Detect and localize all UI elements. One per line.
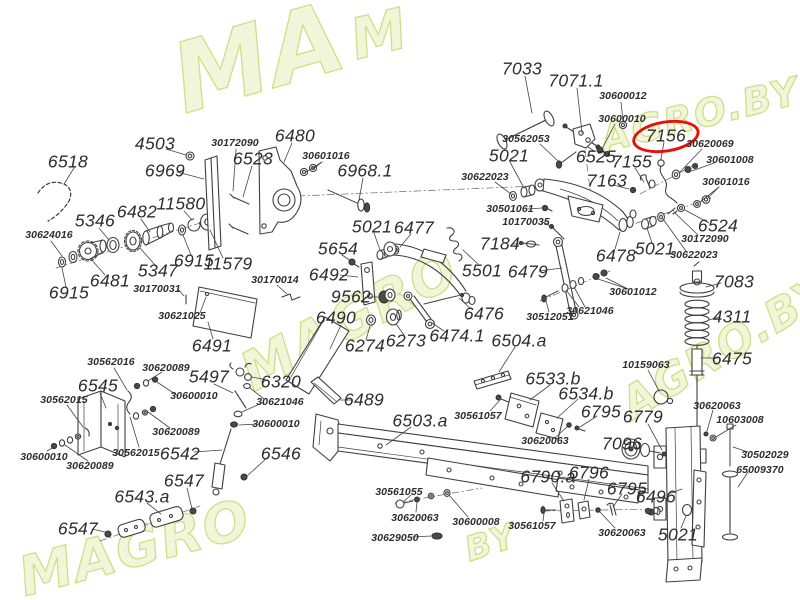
part-label-5497: 5497 <box>189 367 229 388</box>
turnbuckles-6543a <box>105 505 196 538</box>
part-label-6795: 6795 <box>581 402 621 423</box>
part-label-30600010: 30600010 <box>170 390 218 402</box>
part-label-5501: 5501 <box>462 261 502 282</box>
part-label-6481: 6481 <box>90 271 130 292</box>
part-label-5347: 5347 <box>138 261 178 282</box>
part-label-30600010: 30600010 <box>598 113 646 125</box>
part-label-6915: 6915 <box>49 283 89 304</box>
part-label-6543.a: 6543.a <box>114 487 169 508</box>
part-label-30620089: 30620089 <box>66 460 114 472</box>
part-label-6480: 6480 <box>275 126 315 147</box>
part-label-6492: 6492 <box>309 265 349 286</box>
part-label-30601012: 30601012 <box>609 286 657 298</box>
part-label-30620069: 30620069 <box>686 138 734 150</box>
part-label-30620063: 30620063 <box>391 512 439 524</box>
part-label-30620063: 30620063 <box>521 435 569 447</box>
part-label-7163: 7163 <box>587 171 627 192</box>
part-label-6273: 6273 <box>386 331 426 352</box>
part-label-7184: 7184 <box>480 234 520 255</box>
part-label-30562015: 30562015 <box>112 447 160 459</box>
part-label-11579: 11579 <box>204 254 253 275</box>
part-label-6491: 6491 <box>192 336 232 357</box>
part-label-30561055: 30561055 <box>375 486 423 498</box>
part-label-7083: 7083 <box>714 272 754 293</box>
part-label-30621025: 30621025 <box>158 310 206 322</box>
part-label-30600008: 30600008 <box>452 516 500 528</box>
part-label-6547: 6547 <box>58 519 98 540</box>
part-label-6320: 6320 <box>261 372 301 393</box>
part-label-6547: 6547 <box>164 471 204 492</box>
part-label-30562016: 30562016 <box>87 356 135 368</box>
part-label-6546: 6546 <box>261 444 301 465</box>
part-label-6274: 6274 <box>345 336 385 357</box>
part-label-6496: 6496 <box>636 487 676 508</box>
part-label-7033: 7033 <box>502 59 542 80</box>
part-label-5654: 5654 <box>318 239 358 260</box>
part-label-5021: 5021 <box>658 525 698 546</box>
part-label-30620063: 30620063 <box>693 400 741 412</box>
part-label-30600012: 30600012 <box>599 90 647 102</box>
part-label-5346: 5346 <box>75 211 115 232</box>
part-label-5021: 5021 <box>489 146 529 167</box>
part-label-30621046: 30621046 <box>256 396 304 408</box>
part-label-6779: 6779 <box>623 407 663 428</box>
part-label-6475: 6475 <box>712 349 752 370</box>
part-label-6523: 6523 <box>233 149 273 170</box>
part-label-65009370: 65009370 <box>736 464 784 476</box>
part-label-7155: 7155 <box>612 152 652 173</box>
part-label-6969: 6969 <box>145 161 185 182</box>
part-label-30170031: 30170031 <box>133 283 181 295</box>
part-label-30562053: 30562053 <box>502 133 550 145</box>
angle-6504a <box>474 371 511 389</box>
part-label-6503.a: 6503.a <box>392 411 447 432</box>
part-label-30601008: 30601008 <box>706 154 754 166</box>
part-label-7096: 7096 <box>602 434 642 455</box>
part-label-11580: 11580 <box>157 194 206 215</box>
part-label-6518: 6518 <box>48 152 88 173</box>
part-label-9562: 9562 <box>331 287 371 308</box>
part-label-30172090: 30172090 <box>211 137 259 149</box>
part-label-6542: 6542 <box>160 444 200 465</box>
part-label-30624016: 30624016 <box>25 229 73 241</box>
part-label-6489: 6489 <box>344 390 384 411</box>
part-label-4503: 4503 <box>135 134 175 155</box>
part-label-5021: 5021 <box>635 239 675 260</box>
part-label-4311: 4311 <box>713 307 752 328</box>
part-label-30512051: 30512051 <box>526 311 574 323</box>
part-label-10159063: 10159063 <box>622 359 670 371</box>
part-label-30620089: 30620089 <box>142 362 190 374</box>
part-label-6504.a: 6504.a <box>491 331 546 352</box>
part-label-6968.1: 6968.1 <box>337 161 392 182</box>
part-label-30620089: 30620089 <box>152 426 200 438</box>
part-label-6482: 6482 <box>117 202 157 223</box>
part-label-6477: 6477 <box>394 218 434 239</box>
part-label-30600010: 30600010 <box>20 451 68 463</box>
part-label-30172090: 30172090 <box>681 233 729 245</box>
part-label-30620063: 30620063 <box>598 527 646 539</box>
part-label-7071.1: 7071.1 <box>548 71 603 92</box>
part-label-30170014: 30170014 <box>251 274 299 286</box>
part-label-30561057: 30561057 <box>508 520 556 532</box>
part-label-6474.1: 6474.1 <box>429 326 484 347</box>
part-label-7156: 7156 <box>646 126 686 147</box>
part-label-6478: 6478 <box>596 246 636 267</box>
part-label-30502029: 30502029 <box>741 449 789 461</box>
part-label-6479: 6479 <box>508 262 548 283</box>
part-label-5021: 5021 <box>352 217 392 238</box>
part-label-30501061: 30501061 <box>486 203 534 215</box>
part-label-10603008: 10603008 <box>716 414 764 426</box>
part-label-6490: 6490 <box>316 308 356 329</box>
part-label-30622023: 30622023 <box>461 171 509 183</box>
strip-6489 <box>311 377 341 404</box>
part-label-6796: 6796 <box>569 463 609 484</box>
part-label-6525: 6525 <box>576 147 616 168</box>
part-label-30600010: 30600010 <box>252 418 300 430</box>
part-label-30562015: 30562015 <box>40 394 88 406</box>
parts-diagram-page: MAMMAGROAGRO.BYAGRO.BYMAGROBY <box>0 0 800 600</box>
part-label-30629050: 30629050 <box>371 532 419 544</box>
part-label-6790.a: 6790.a <box>520 467 575 488</box>
part-label-30622023: 30622023 <box>670 249 718 261</box>
part-label-10170035: 10170035 <box>502 216 550 228</box>
part-label-30601016: 30601016 <box>702 176 750 188</box>
exploded-diagram-art <box>0 0 800 600</box>
part-label-30561057: 30561057 <box>454 410 502 422</box>
chain-6518 <box>38 182 71 221</box>
part-label-6476: 6476 <box>464 304 504 325</box>
